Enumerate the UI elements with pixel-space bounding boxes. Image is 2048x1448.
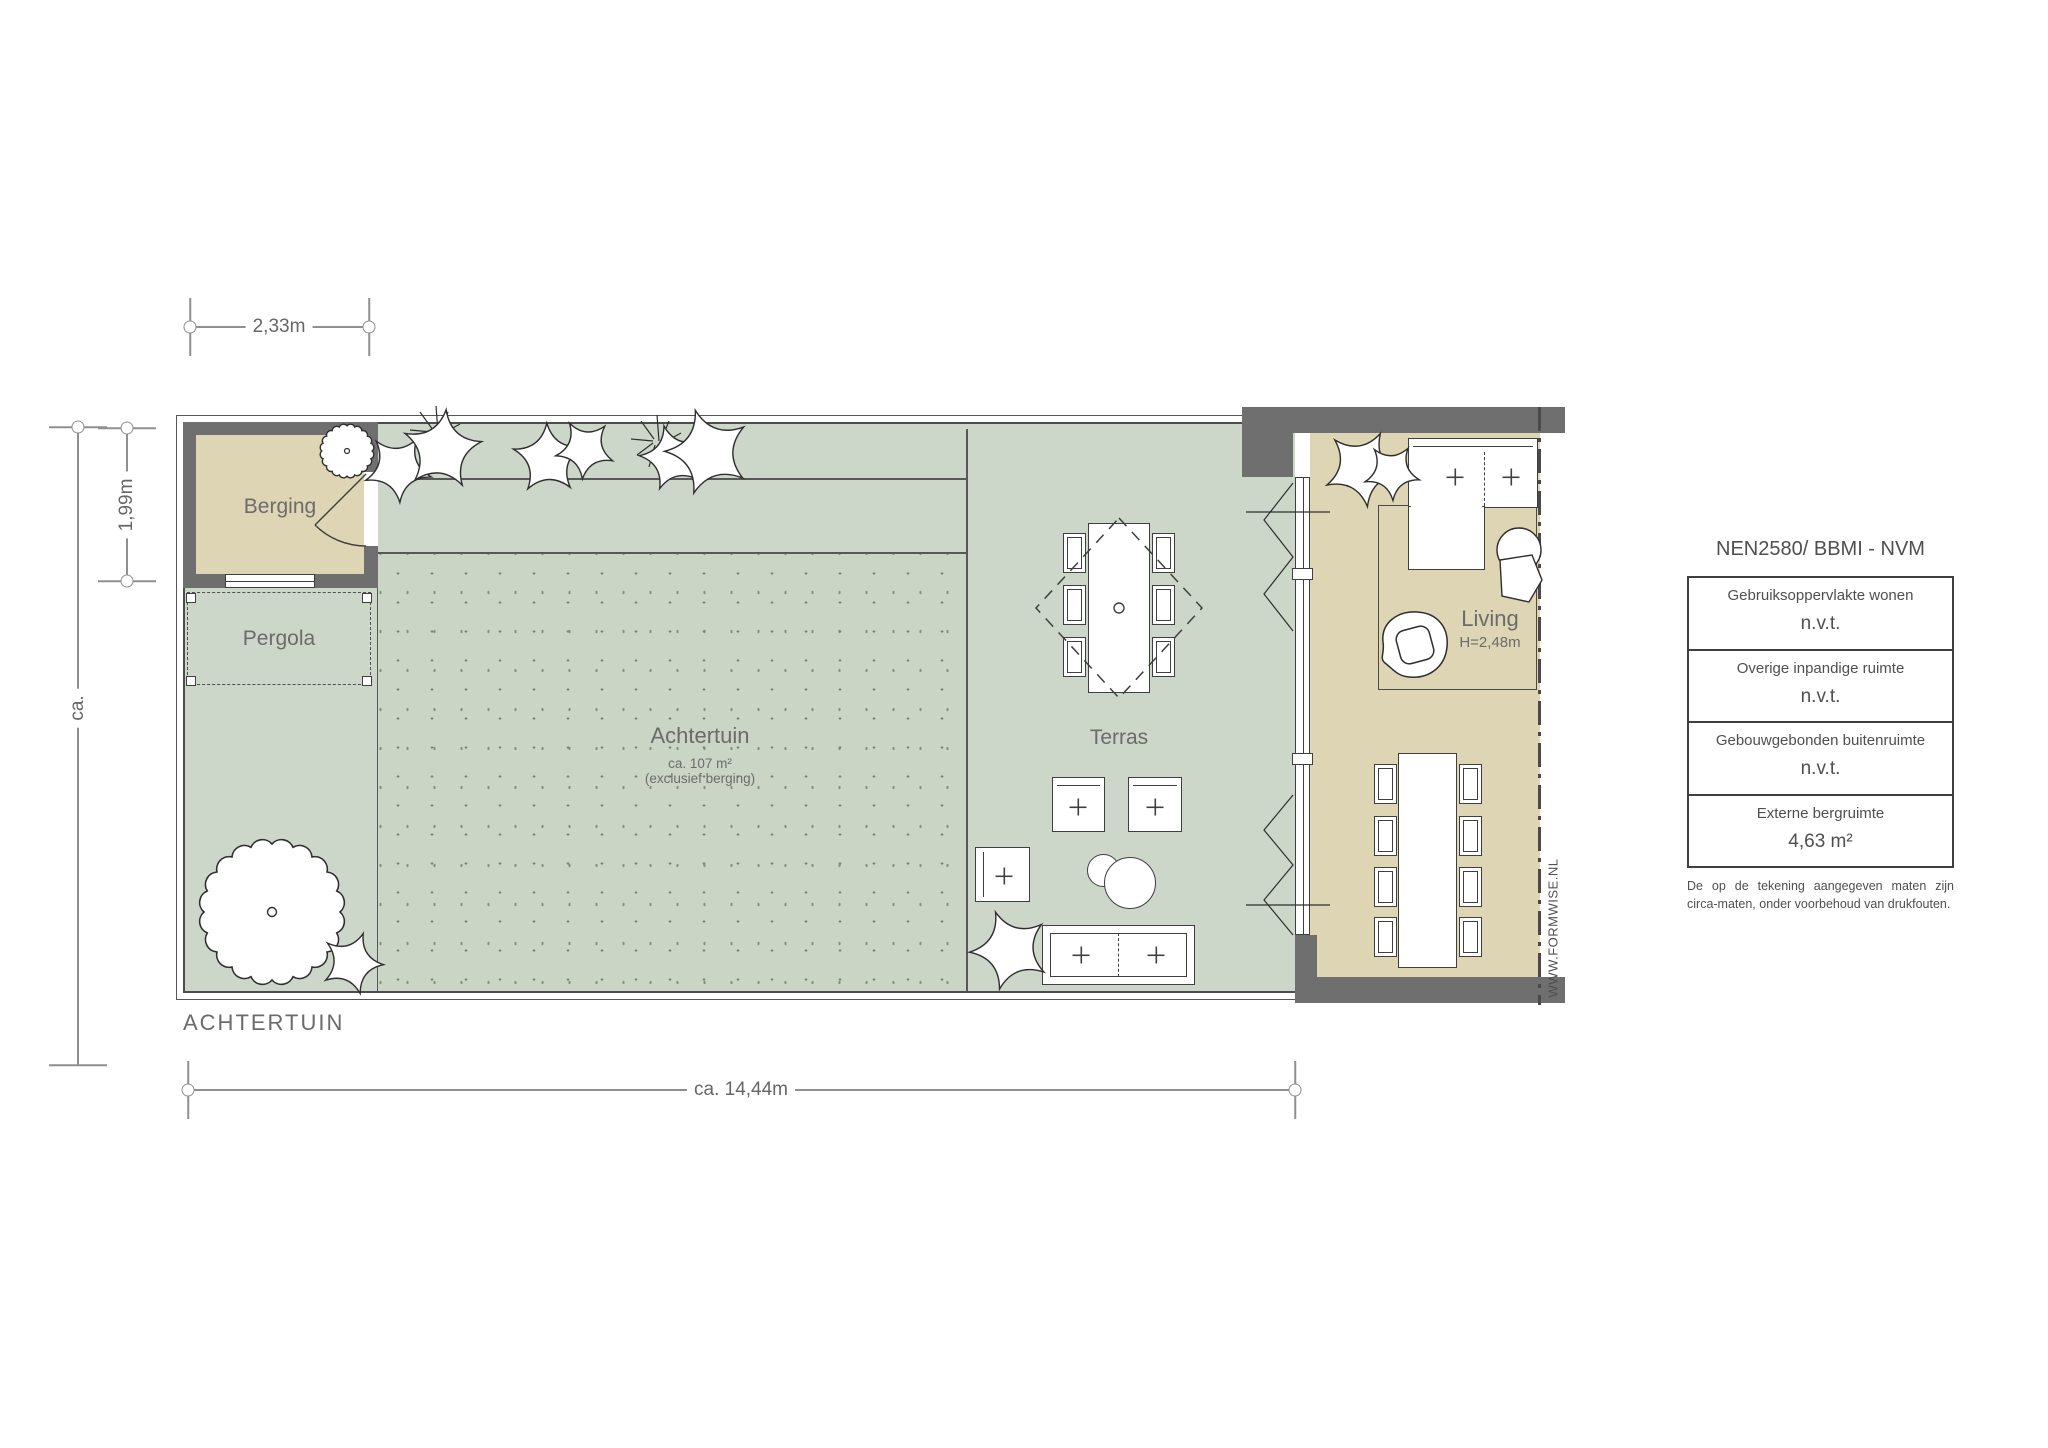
- legend-row-label: Gebruiksoppervlakte wonen: [1689, 578, 1952, 604]
- pergola-post: [186, 676, 196, 686]
- dim-marker: [182, 1084, 195, 1097]
- dim-marker: [121, 422, 134, 435]
- legend-table: Gebruiksoppervlakte wonen n.v.t. Overige…: [1687, 576, 1954, 868]
- achtertuin-label: Achtertuin: [550, 723, 850, 749]
- terras-divider: [966, 429, 968, 991]
- facade-glass-line: [1303, 478, 1304, 934]
- dim-berging-height: 1,99m: [116, 472, 138, 539]
- legend-title: NEN2580/ BBMI - NVM: [1687, 538, 1954, 561]
- legend-panel: NEN2580/ BBMI - NVM Gebruiksoppervlakte …: [1687, 538, 1954, 913]
- legend-row: Gebouwgebonden buitenruimte n.v.t.: [1689, 721, 1952, 794]
- chair-seat: [1067, 589, 1082, 621]
- living-sofa-chaise: [1408, 506, 1485, 570]
- floorplan-canvas: Berging Pergola Achtertuin ca. 107 m² (e…: [0, 0, 2048, 1448]
- chair-backrest: [1133, 785, 1177, 786]
- legend-row-label: Overige inpandige ruimte: [1689, 651, 1952, 677]
- legend-row: Overige inpandige ruimte n.v.t.: [1689, 649, 1952, 722]
- dim-marker: [1289, 1084, 1302, 1097]
- dim-bottom-width: ca. 14,44m: [687, 1079, 795, 1101]
- living-dining-chair: [1459, 816, 1482, 856]
- sofa-backrest: [1413, 446, 1533, 447]
- cushion-mark: [1447, 469, 1464, 486]
- living-label-block: Living H=2,48m: [1400, 606, 1580, 651]
- chair-seat: [1156, 537, 1171, 569]
- cushion-mark: [1073, 947, 1090, 964]
- berging-window: [225, 574, 315, 588]
- terras-sofa: [1042, 925, 1195, 985]
- chair-seat: [1067, 537, 1082, 569]
- dim-marker: [184, 321, 197, 334]
- achtertuin-area: ca. 107 m²: [550, 756, 850, 771]
- sofa-join-patch: [1411, 503, 1482, 509]
- terras-dining-chair: [1152, 585, 1175, 625]
- dim-left-depth: ca.: [67, 688, 89, 727]
- legend-row: Gebruiksoppervlakte wonen n.v.t.: [1689, 578, 1952, 649]
- cushion-mark: [996, 868, 1013, 885]
- legend-row-value: n.v.t.: [1689, 677, 1952, 708]
- legend-row-value: n.v.t.: [1689, 604, 1952, 635]
- cushion-mark: [1070, 799, 1087, 816]
- living-dining-table: [1398, 753, 1457, 968]
- living-dining-chair: [1459, 917, 1482, 957]
- chair-seat: [1463, 871, 1478, 903]
- legend-row-value: n.v.t.: [1689, 749, 1952, 780]
- chair-backrest: [983, 852, 984, 897]
- chair-seat: [1378, 921, 1393, 953]
- legend-row: Externe bergruimte 4,63 m²: [1689, 794, 1952, 867]
- dim-top-width: 2,33m: [246, 316, 313, 338]
- terras-dining-chair: [1063, 637, 1086, 677]
- facade-mullion: [1292, 753, 1313, 765]
- cushion-mark: [1147, 799, 1164, 816]
- chair-seat: [1378, 871, 1393, 903]
- chair-seat: [1156, 641, 1171, 673]
- legend-row-value: 4,63 m²: [1689, 822, 1952, 853]
- window-glass-line: [226, 581, 314, 582]
- terras-dining-chair: [1063, 585, 1086, 625]
- house-corner-block: [1242, 407, 1293, 477]
- living-dining-chair: [1374, 816, 1397, 856]
- plan-title: ACHTERTUIN: [183, 1010, 344, 1036]
- house-bottom-wall: [1295, 977, 1565, 1003]
- facade-mullion: [1292, 568, 1313, 580]
- chair-seat: [1378, 820, 1393, 852]
- chair-seat: [1067, 641, 1082, 673]
- cushion-mark: [1148, 947, 1165, 964]
- house-bottom-stub: [1295, 935, 1317, 979]
- living-dining-chair: [1374, 917, 1397, 957]
- dim-marker: [121, 575, 134, 588]
- dim-marker: [72, 421, 85, 434]
- living-sofa-divider: [1484, 452, 1485, 506]
- achtertuin-note: (exclusief berging): [550, 771, 850, 786]
- living-dining-chair: [1374, 764, 1397, 804]
- legend-row-label: Externe bergruimte: [1689, 796, 1952, 822]
- glazed-facade: [1295, 477, 1310, 935]
- berging-label: Berging: [196, 495, 364, 519]
- dim-tick: [49, 1064, 107, 1066]
- terras-dining-chair: [1152, 637, 1175, 677]
- living-dining-chair: [1374, 867, 1397, 907]
- sofa-divider: [1118, 933, 1119, 977]
- chair-seat: [1463, 820, 1478, 852]
- terras-side-table-large: [1104, 857, 1156, 909]
- chair-seat: [1463, 768, 1478, 800]
- pergola-label: Pergola: [187, 627, 371, 651]
- planting-bed-line-upper: [378, 478, 967, 480]
- formwise-watermark: WWW.FORMWISE.NL: [1546, 859, 1561, 998]
- chair-seat: [1156, 589, 1171, 621]
- terras-label: Terras: [1029, 726, 1209, 750]
- terras-dining-chair: [1152, 533, 1175, 573]
- living-dining-chair: [1459, 764, 1482, 804]
- pergola-post: [186, 593, 196, 603]
- cushion-mark: [1503, 469, 1520, 486]
- living-label: Living: [1400, 606, 1580, 632]
- berging-door-opening: [364, 472, 378, 546]
- terras-dining-table: [1088, 523, 1150, 693]
- legend-footnote: De op de tekening aangegeven maten zijn …: [1687, 878, 1954, 913]
- legend-row-label: Gebouwgebonden buitenruimte: [1689, 723, 1952, 749]
- living-height: H=2,48m: [1400, 634, 1580, 651]
- chair-backrest: [1057, 785, 1100, 786]
- chair-seat: [1463, 921, 1478, 953]
- achtertuin-label-block: Achtertuin ca. 107 m² (exclusief berging…: [550, 723, 850, 786]
- chair-seat: [1378, 768, 1393, 800]
- dim-marker: [363, 321, 376, 334]
- living-dining-chair: [1459, 867, 1482, 907]
- terras-dining-chair: [1063, 533, 1086, 573]
- pergola-post: [362, 676, 372, 686]
- section-cut-line: [1538, 407, 1541, 1005]
- dim-line-depth: [77, 427, 79, 1065]
- pergola-post: [362, 593, 372, 603]
